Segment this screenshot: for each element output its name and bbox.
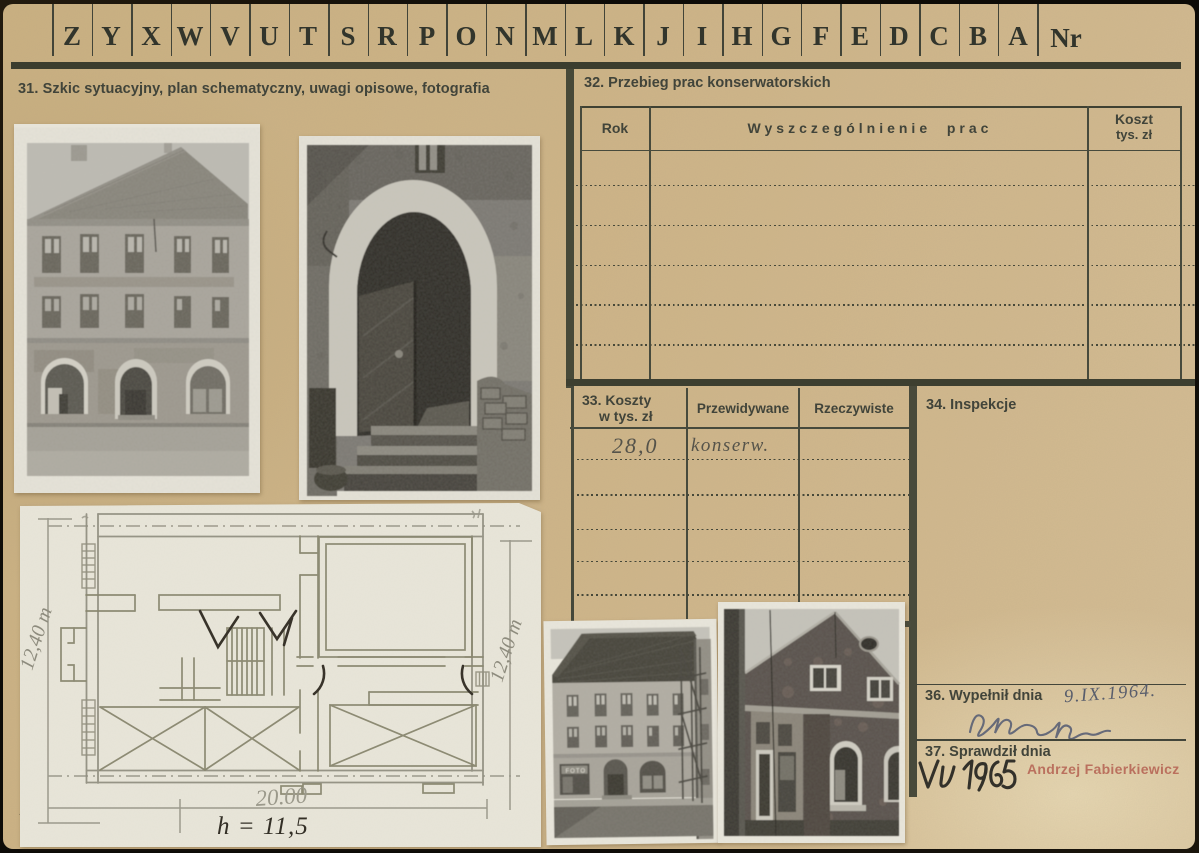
svg-text:h = 11,5: h = 11,5 (217, 813, 309, 840)
svg-text:20.00: 20.00 (255, 782, 309, 811)
